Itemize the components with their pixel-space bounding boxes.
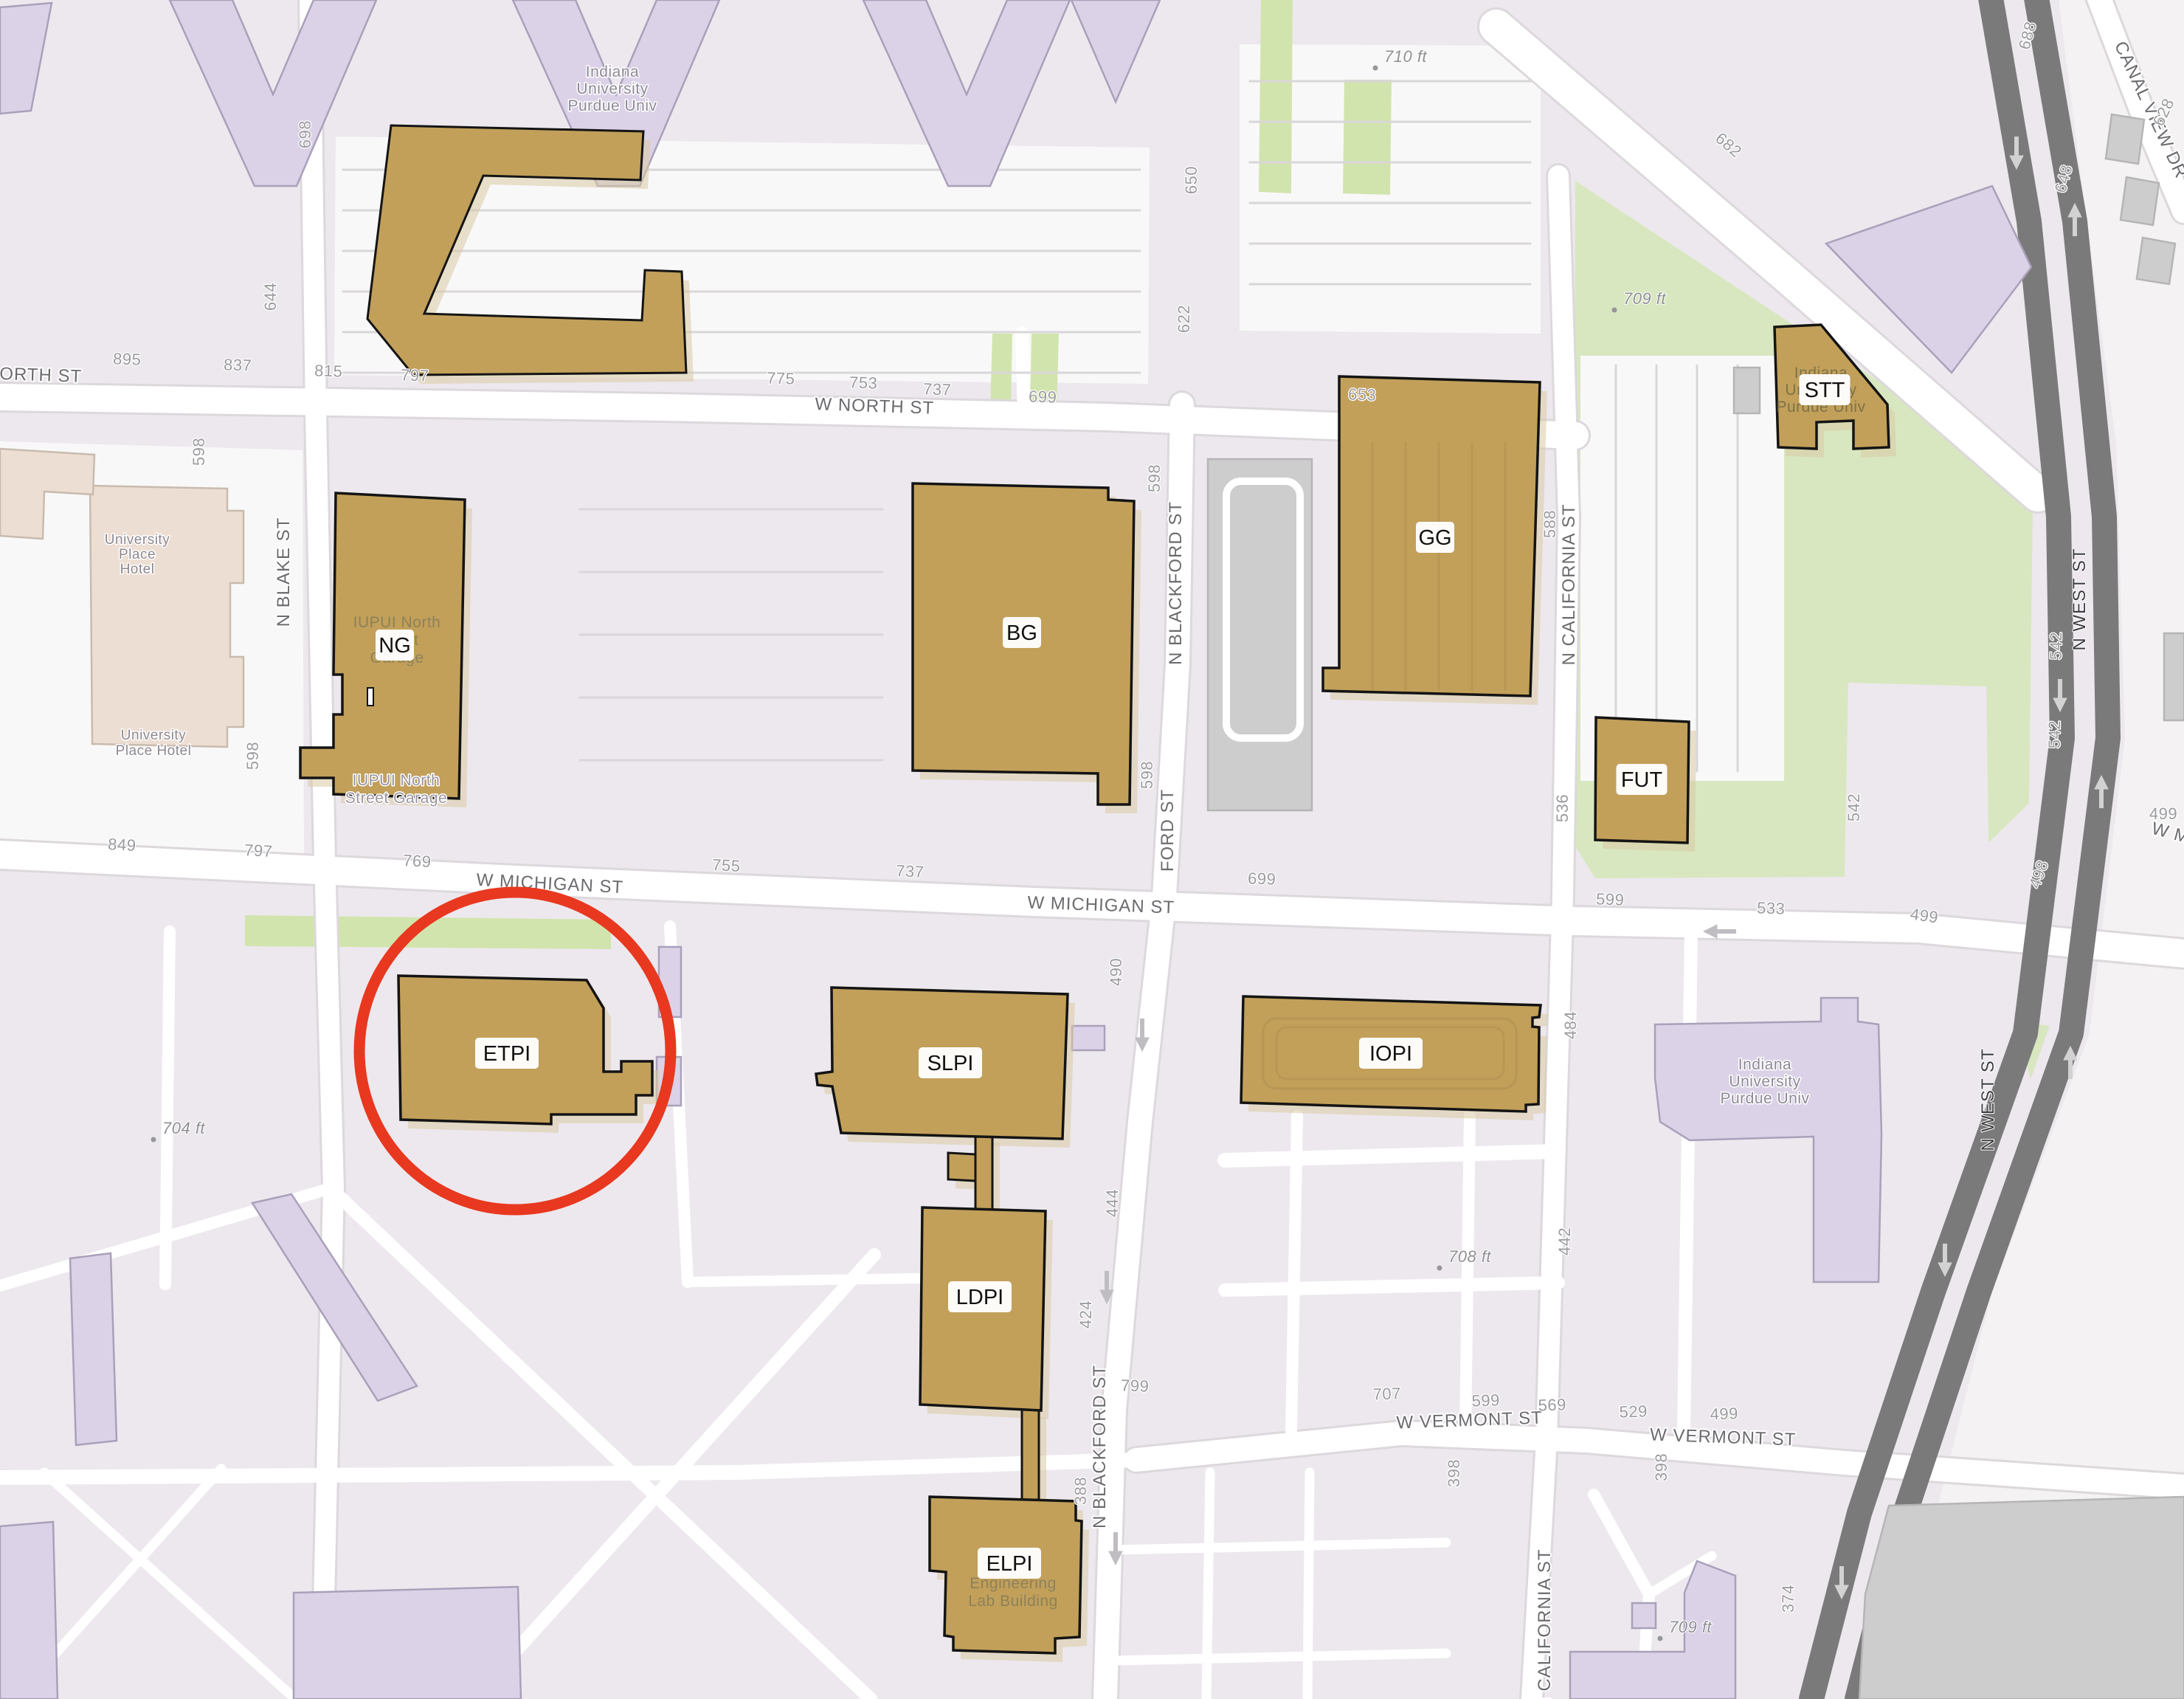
address-number: 536 bbox=[1553, 794, 1572, 822]
path bbox=[1465, 1116, 1470, 1430]
place-label: Purdue Univ bbox=[567, 97, 657, 114]
address-number: 599 bbox=[1471, 1390, 1500, 1410]
address-number: 698 bbox=[296, 120, 314, 148]
building-footprint bbox=[1632, 1603, 1656, 1628]
building-label-stt[interactable]: STT bbox=[1800, 374, 1850, 405]
address-number: 837 bbox=[224, 355, 252, 374]
place-label: IUPUI North bbox=[353, 772, 440, 789]
svg-text:ETPI: ETPI bbox=[483, 1042, 531, 1066]
address-number: 442 bbox=[1555, 1227, 1574, 1255]
place-label: Place Hotel bbox=[116, 743, 192, 759]
building-label-etpi[interactable]: ETPI bbox=[475, 1038, 539, 1069]
place-label: University bbox=[576, 80, 648, 97]
address-number: 797 bbox=[401, 365, 429, 385]
park-area bbox=[1343, 80, 1392, 195]
street-label: N BLAKE ST bbox=[274, 517, 294, 627]
address-number: 707 bbox=[1372, 1384, 1401, 1403]
building-label-bg[interactable]: BG bbox=[1003, 617, 1041, 648]
elevation-label: 704 ft bbox=[162, 1119, 205, 1137]
building-label-gg[interactable]: GG bbox=[1416, 522, 1454, 553]
address-number: 598 bbox=[1138, 761, 1156, 789]
address-number: 769 bbox=[403, 851, 432, 871]
elevation-dot bbox=[151, 1137, 156, 1143]
building-footprint bbox=[294, 1587, 521, 1699]
elevation-label: 710 ft bbox=[1384, 47, 1427, 66]
path bbox=[1225, 1283, 1558, 1290]
building-label-ldpi[interactable]: LDPI bbox=[948, 1281, 1012, 1312]
address-number: 755 bbox=[712, 855, 741, 875]
ghost-label: IUPUI North bbox=[353, 614, 441, 631]
address-number: 484 bbox=[1561, 1011, 1580, 1039]
svg-text:BG: BG bbox=[1006, 621, 1037, 645]
address-number: 599 bbox=[1596, 889, 1625, 909]
building-footprint bbox=[0, 1522, 58, 1699]
address-number: 753 bbox=[849, 373, 878, 392]
building-footprint bbox=[70, 1253, 117, 1445]
address-number: 444 bbox=[1103, 1189, 1122, 1217]
svg-text:GG: GG bbox=[1418, 526, 1451, 550]
elevation-label: 709 ft bbox=[1623, 289, 1666, 308]
elevation-label: 708 ft bbox=[1448, 1247, 1491, 1266]
street-label: N WEST ST bbox=[1978, 1048, 1998, 1151]
address-number: 653 bbox=[1348, 385, 1377, 404]
address-number: 398 bbox=[1445, 1459, 1463, 1487]
address-number: 699 bbox=[1029, 387, 1057, 406]
address-number: 598 bbox=[243, 742, 262, 770]
path bbox=[1225, 1151, 1558, 1160]
address-number: 775 bbox=[767, 368, 795, 387]
building-label-elpi[interactable]: ELPI bbox=[978, 1548, 1041, 1579]
path bbox=[1307, 1472, 1310, 1699]
street-label: N CALIFORNIA ST bbox=[1535, 1548, 1555, 1699]
address-number: 398 bbox=[1652, 1453, 1670, 1481]
address-number: 569 bbox=[1538, 1395, 1566, 1414]
elevation-dot bbox=[1373, 66, 1378, 71]
svg-text:SLPI: SLPI bbox=[927, 1052, 974, 1075]
city-block bbox=[1848, 690, 1985, 875]
ghost-label: Lab Building bbox=[968, 1593, 1058, 1610]
elevation-dot bbox=[1658, 1636, 1663, 1641]
elevation-dot bbox=[1612, 308, 1617, 313]
campus-building[interactable] bbox=[1022, 1407, 1039, 1500]
address-number: 529 bbox=[1619, 1402, 1648, 1421]
address-number: 895 bbox=[113, 349, 142, 368]
address-number: 737 bbox=[923, 379, 952, 399]
address-number: 650 bbox=[1182, 166, 1200, 194]
street-label: N CALIFORNIA ST bbox=[1559, 503, 1579, 665]
street-label: ORTH ST bbox=[0, 364, 83, 387]
path bbox=[165, 931, 170, 1284]
building-footprint-gray bbox=[1734, 368, 1760, 413]
path bbox=[690, 1278, 920, 1282]
street-label: N BLACKFORD ST bbox=[1090, 1365, 1110, 1529]
address-number: 542 bbox=[2047, 632, 2065, 660]
address-number: 815 bbox=[314, 361, 343, 380]
street-label: W NORTH ST bbox=[815, 394, 934, 418]
svg-text:ELPI: ELPI bbox=[986, 1552, 1033, 1576]
address-number: 499 bbox=[1909, 905, 1939, 927]
place-label: Place bbox=[119, 547, 156, 562]
svg-text:NG: NG bbox=[379, 634, 411, 658]
address-number: 598 bbox=[1145, 464, 1164, 492]
address-number: 849 bbox=[108, 835, 136, 855]
building-label-fut[interactable]: FUT bbox=[1617, 764, 1668, 795]
path bbox=[1684, 931, 1691, 1432]
address-number: 424 bbox=[1077, 1300, 1095, 1328]
place-label: Purdue Univ bbox=[1720, 1090, 1809, 1107]
address-number: 644 bbox=[261, 283, 280, 311]
place-label: Hotel bbox=[120, 562, 155, 577]
address-number: 799 bbox=[1121, 1376, 1150, 1395]
building-footprint-gray bbox=[2106, 114, 2144, 164]
address-number: 622 bbox=[1175, 305, 1193, 333]
path bbox=[1291, 1116, 1297, 1430]
building-label-ng[interactable]: NG bbox=[376, 630, 414, 661]
place-label: Indiana bbox=[586, 63, 639, 80]
building-footprint-gray bbox=[1859, 1497, 2184, 1699]
building-label-slpi[interactable]: SLPI bbox=[919, 1047, 982, 1078]
place-label: University bbox=[121, 728, 186, 743]
place-label: University bbox=[1729, 1073, 1800, 1090]
street-label: N WEST ST bbox=[2070, 548, 2090, 650]
address-number: 499 bbox=[2149, 804, 2177, 823]
address-number: 374 bbox=[1779, 1585, 1797, 1613]
campus-building[interactable] bbox=[948, 1153, 975, 1181]
place-label: Street Garage bbox=[345, 790, 447, 807]
building-footprint-gray bbox=[2137, 238, 2175, 284]
building-university-place-hotel bbox=[90, 486, 243, 747]
svg-text:STT: STT bbox=[1805, 379, 1845, 402]
street-label: N BLACKFORD ST bbox=[1166, 501, 1186, 665]
street-label: FORD ST bbox=[1158, 789, 1178, 872]
elevation-label: 709 ft bbox=[1669, 1618, 1712, 1636]
address-number: 542 bbox=[1845, 793, 1863, 821]
path bbox=[1206, 1472, 1210, 1699]
address-number: 699 bbox=[1248, 869, 1276, 888]
address-number: 542 bbox=[2045, 720, 2064, 748]
park-area bbox=[1259, 0, 1293, 193]
building-footprint-gray bbox=[2121, 177, 2159, 225]
building-label-iopi[interactable]: IOPI bbox=[1359, 1038, 1423, 1069]
campus-building[interactable] bbox=[975, 1133, 992, 1212]
svg-text:IOPI: IOPI bbox=[1369, 1042, 1412, 1066]
address-number: 588 bbox=[1541, 510, 1559, 538]
svg-text:FUT: FUT bbox=[1621, 768, 1663, 792]
address-number: 737 bbox=[896, 861, 925, 881]
building-ng-slit bbox=[367, 688, 373, 706]
address-number: 499 bbox=[1710, 1404, 1738, 1423]
address-number: 388 bbox=[1071, 1477, 1090, 1505]
address-number: 490 bbox=[1107, 958, 1125, 986]
address-number: 533 bbox=[1757, 898, 1786, 917]
place-label: Indiana bbox=[1738, 1056, 1791, 1073]
place-label: University bbox=[105, 532, 170, 548]
address-number: 598 bbox=[190, 438, 208, 466]
map-canvas[interactable]: IUPUI NorthStreetGarageIndianaUniversity… bbox=[0, 0, 2184, 1699]
map-viewport[interactable]: IUPUI NorthStreetGarageIndianaUniversity… bbox=[0, 0, 2184, 1699]
address-number: 797 bbox=[244, 841, 273, 861]
building-footprint bbox=[1072, 1026, 1105, 1050]
building-footprint-gray bbox=[2164, 633, 2184, 720]
svg-text:LDPI: LDPI bbox=[956, 1286, 1003, 1309]
elevation-dot bbox=[1437, 1266, 1442, 1271]
